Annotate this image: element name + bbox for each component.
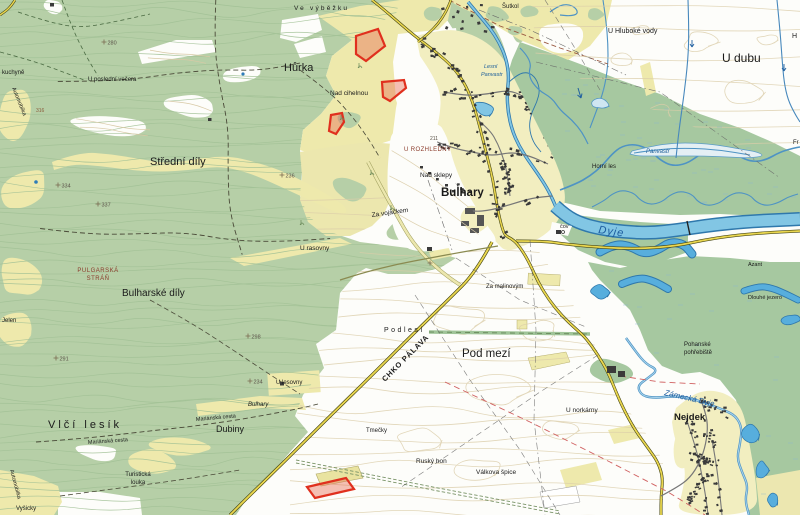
svg-text:280: 280 [108,41,117,47]
svg-text:Střední díly: Střední díly [150,156,206,168]
svg-text:Nejdek: Nejdek [674,412,706,423]
svg-text:pohřebiště: pohřebiště [684,350,713,356]
svg-text:337: 337 [102,203,111,209]
svg-text:234: 234 [254,380,263,386]
svg-text:Lesní: Lesní [484,64,498,70]
svg-text:Bulhary: Bulhary [441,187,484,199]
svg-text:Šutkol: Šutkol [502,3,519,10]
svg-text:Dlouhé jezero: Dlouhé jezero [748,295,782,301]
svg-text:Podlesí: Podlesí [384,327,425,334]
svg-text:298: 298 [252,335,261,341]
svg-text:316: 316 [36,108,45,114]
svg-text:U lesovny: U lesovny [276,380,302,386]
svg-text:U norkárny: U norkárny [566,407,599,414]
svg-text:Pohanské: Pohanské [684,342,711,348]
svg-text:Panvastr: Panvastr [646,149,671,155]
svg-text:Válkova špice: Válkova špice [476,469,516,476]
svg-text:Bulhary: Bulhary [248,402,269,408]
svg-text:Horní les: Horní les [592,164,616,170]
svg-text:Jelen: Jelen [2,318,16,324]
svg-text:236: 236 [286,174,295,180]
svg-text:Vlčí lesík: Vlčí lesík [48,419,122,431]
svg-text:U ROZHLEDNY: U ROZHLEDNY [404,147,451,153]
svg-text:Bulharské díly: Bulharské díly [122,288,185,299]
svg-text:Ve výběžku: Ve výběžku [294,5,349,12]
svg-text:čov: čov [560,224,569,230]
svg-text:Ruský hon: Ruský hon [416,458,447,465]
svg-text:Za malinovým: Za malinovým [486,284,523,290]
svg-text:Turistická: Turistická [125,472,151,478]
svg-text:Tmečky: Tmečky [366,428,387,434]
svg-text:U dubu: U dubu [722,51,761,65]
svg-text:H: H [792,33,797,40]
svg-text:211: 211 [430,136,438,142]
svg-text:Panvastr: Panvastr [481,72,504,78]
svg-text:Nad sklepy: Nad sklepy [420,172,453,179]
svg-text:Fr: Fr [793,140,799,146]
svg-text:PULGARSKÁ: PULGARSKÁ [77,267,118,274]
svg-text:334: 334 [62,184,71,190]
svg-text:louka: louka [131,480,146,486]
svg-text:U poslední večera: U poslední večera [88,77,137,83]
svg-text:Vyšicky: Vyšicky [16,506,36,512]
svg-text:Dubiny: Dubiny [216,424,245,434]
svg-text:Nad cihelnou: Nad cihelnou [330,90,368,97]
svg-text:STRÁŇ: STRÁŇ [87,275,110,282]
svg-text:Pod mezí: Pod mezí [462,348,511,360]
svg-text:Azant: Azant [748,262,763,268]
svg-text:U Hluboké vody: U Hluboké vody [608,28,658,35]
svg-text:U rasovny: U rasovny [300,245,330,252]
svg-text:kuchyně: kuchyně [2,70,25,76]
svg-text:Hůrka: Hůrka [284,62,314,74]
svg-text:291: 291 [60,357,69,363]
